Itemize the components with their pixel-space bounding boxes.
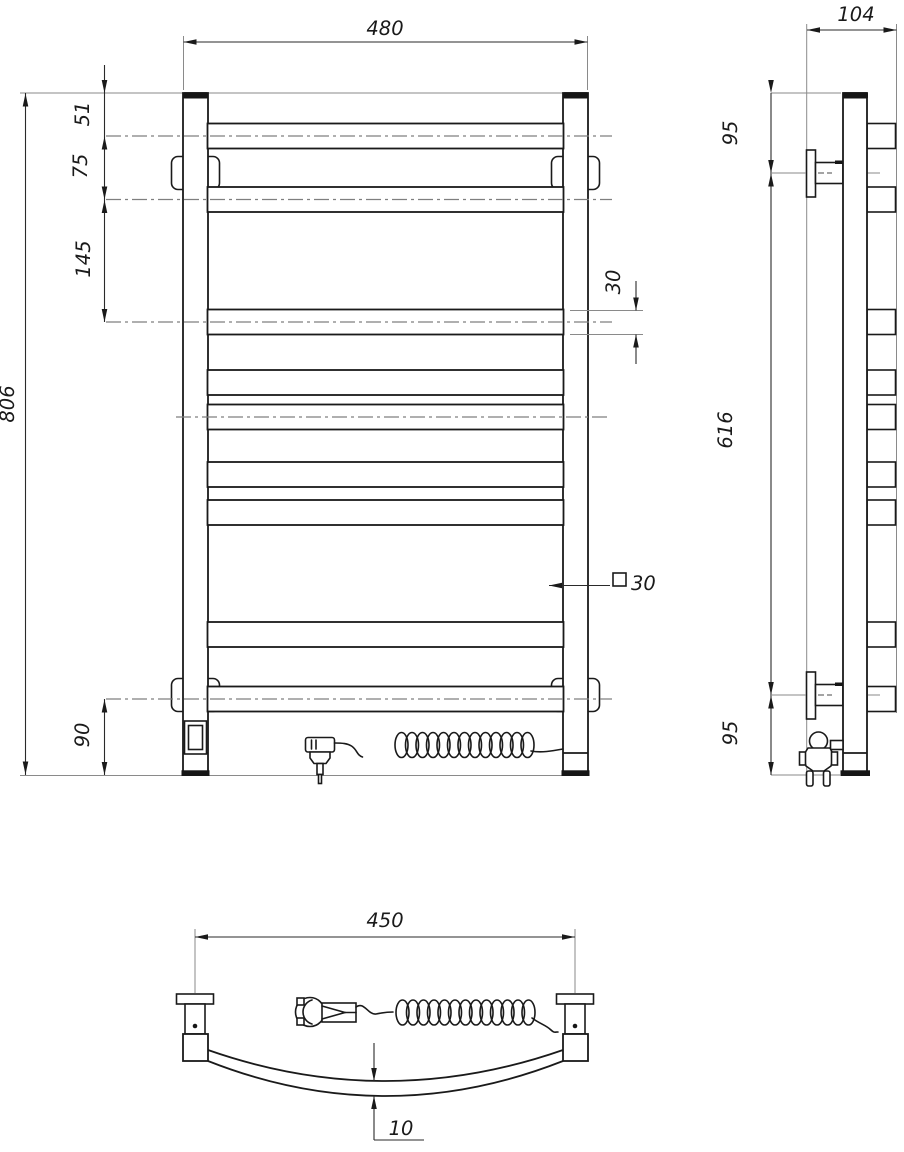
post-top-cap: [843, 92, 869, 98]
plug-pin-tip: [319, 775, 322, 784]
plug-ear: [297, 1018, 304, 1025]
bracket-flange: [807, 150, 816, 197]
cord-coil: [395, 733, 534, 758]
dim-plan-bow: 10: [389, 1117, 414, 1140]
post-bottom-cap: [562, 770, 590, 776]
bracket-screw: [193, 1024, 198, 1029]
control-box-window: [189, 726, 203, 750]
dim-top-to-rung1: 51: [71, 102, 94, 127]
rung: [208, 462, 564, 487]
bracket-stem: [565, 1004, 585, 1034]
bracket-nub: [835, 161, 843, 165]
dim-side-top: 95: [719, 121, 742, 146]
square-symbol: [613, 573, 626, 586]
plug-ear: [297, 998, 304, 1005]
post-section: [183, 1034, 208, 1061]
plug-pin: [824, 771, 831, 786]
cord-lead-out: [531, 749, 563, 752]
plan-view: [177, 994, 594, 1096]
dim-side-bottom: 95: [719, 721, 742, 746]
rung-stub: [867, 187, 896, 212]
dim-rung2-to-rung3: 145: [72, 240, 95, 277]
curved-tube-top-edge: [208, 1050, 563, 1081]
plug-ear: [832, 752, 838, 765]
cord-coil: [396, 1000, 535, 1025]
dim-front-height: 806: [0, 385, 19, 422]
bracket-stem: [185, 1004, 205, 1034]
rung-stub: [867, 370, 896, 395]
cord-lead-in: [356, 1005, 393, 1014]
post-section: [563, 1034, 588, 1061]
bracket-screw: [573, 1024, 578, 1029]
post-bottom-cap: [841, 770, 871, 776]
bracket-flange: [557, 994, 594, 1004]
rung-stub: [867, 310, 896, 335]
rung-stub: [867, 124, 896, 149]
rung-stub: [867, 462, 896, 487]
plug-side: [800, 732, 844, 786]
side-view: [771, 24, 897, 786]
dim-side-depth: 104: [837, 3, 874, 26]
post-top-cap: [563, 92, 588, 98]
rung-stub: [867, 405, 896, 430]
plug-head: [310, 752, 330, 764]
right-post: [563, 93, 588, 775]
dim-rung1-to-rung2: 75: [69, 154, 92, 179]
dim-rung-tube: 30: [602, 270, 625, 295]
bracket-nub: [835, 683, 843, 687]
dim-side-span: 616: [714, 411, 737, 448]
rung-stub: [867, 687, 896, 712]
power-cord-plan: [296, 998, 559, 1033]
cord-lead-in: [335, 743, 363, 757]
plug-pin: [317, 764, 323, 775]
dim-bottom-offset: 90: [71, 723, 94, 748]
front-view: [20, 92, 612, 783]
post-top-cap: [183, 92, 208, 98]
left-post: [183, 93, 208, 775]
dim-square-tube: 30: [631, 572, 656, 595]
drawing-sheet: 480 806 51 75 145 90 30 30: [0, 0, 904, 1152]
bracket-flange: [807, 672, 816, 719]
plug-body: [306, 738, 335, 753]
rung: [208, 500, 564, 525]
cord-stub: [831, 741, 844, 750]
plug-pin: [807, 771, 814, 786]
rung-stub: [867, 500, 896, 525]
rung-stub: [867, 622, 896, 647]
post-profile: [843, 93, 867, 775]
post-bottom-cap: [182, 770, 210, 776]
cord-lead-out: [532, 1018, 558, 1032]
plug-ear: [800, 752, 806, 765]
rung: [208, 370, 564, 395]
rung: [208, 622, 564, 647]
plug-body: [803, 748, 834, 771]
plan-bracket-left: [177, 994, 214, 1061]
control-box: [185, 721, 207, 754]
dim-front-width: 480: [366, 17, 403, 40]
bracket-flange: [177, 994, 214, 1004]
dim-plan-width: 450: [366, 909, 403, 932]
rung-stubs: [867, 124, 896, 712]
